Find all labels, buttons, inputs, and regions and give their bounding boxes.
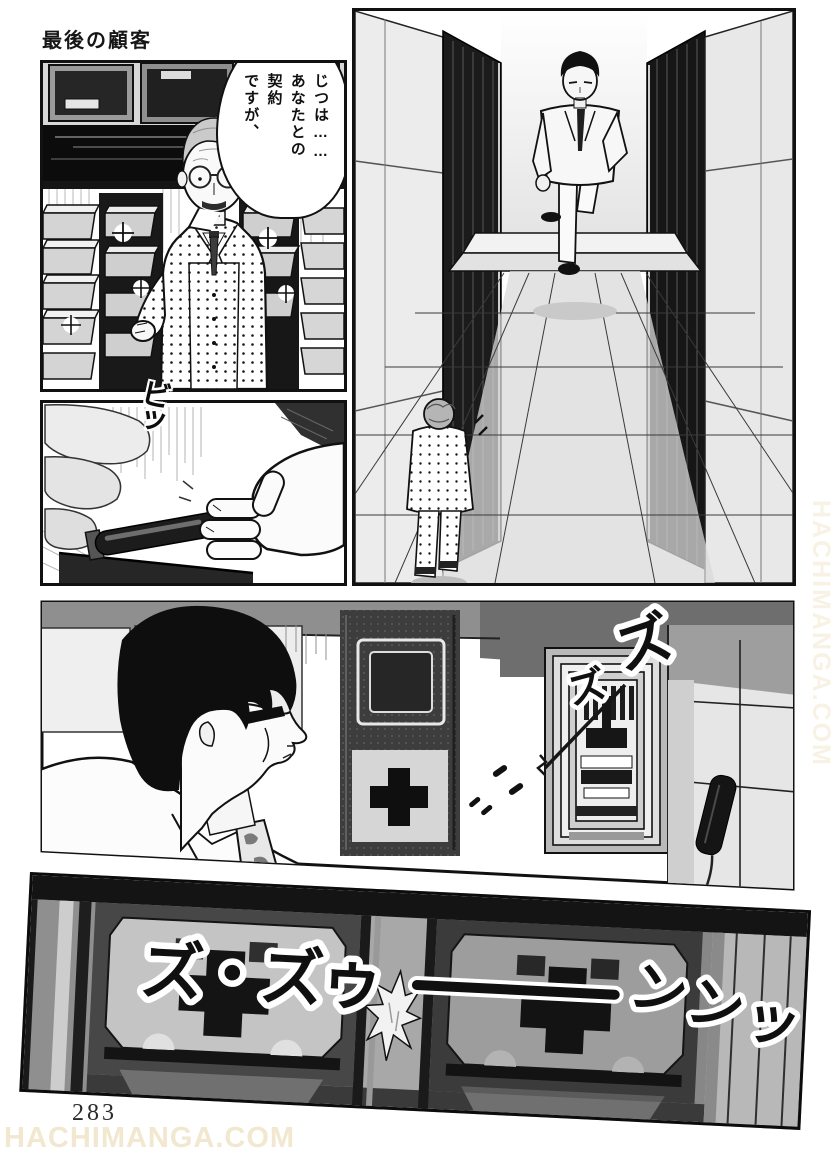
watermark-bottom: HACHIMANGA.COM [4,1122,295,1155]
grabbing-hand [179,403,344,559]
panel-closing-doors: ズ・ズゥ ズ・ズゥ ンンッ ンンッ [19,872,811,1130]
manga-page: 最後の顧客 [0,0,836,1169]
panel5-art: ズ・ズゥ ズ・ズゥ ンンッ ンンッ [22,875,808,1127]
right-wall-tiles [668,625,796,891]
panel-hand-briefcase [40,400,347,586]
panel-vault-old-man: じつは…… あなたとの 契約 ですが、 [40,60,347,392]
left-wall-strip [22,899,95,1092]
svg-text:ズ・ズゥ: ズ・ズゥ [139,935,382,1019]
panel3-art [43,403,344,583]
speech-bubble-text: じつは…… あなたとの 契約 ですが、 [239,73,332,205]
panel2-art [355,11,793,583]
panel-corridor [352,8,796,586]
watermark-side: HACHIMANGA.COM [806,500,835,767]
chapter-title: 最後の顧客 [42,24,152,53]
speech-bubble: じつは…… あなたとの 契約 ですが、 [216,60,347,219]
control-column [340,610,460,856]
panel-profile-door: ズ ズ ズ ズ [40,600,796,900]
